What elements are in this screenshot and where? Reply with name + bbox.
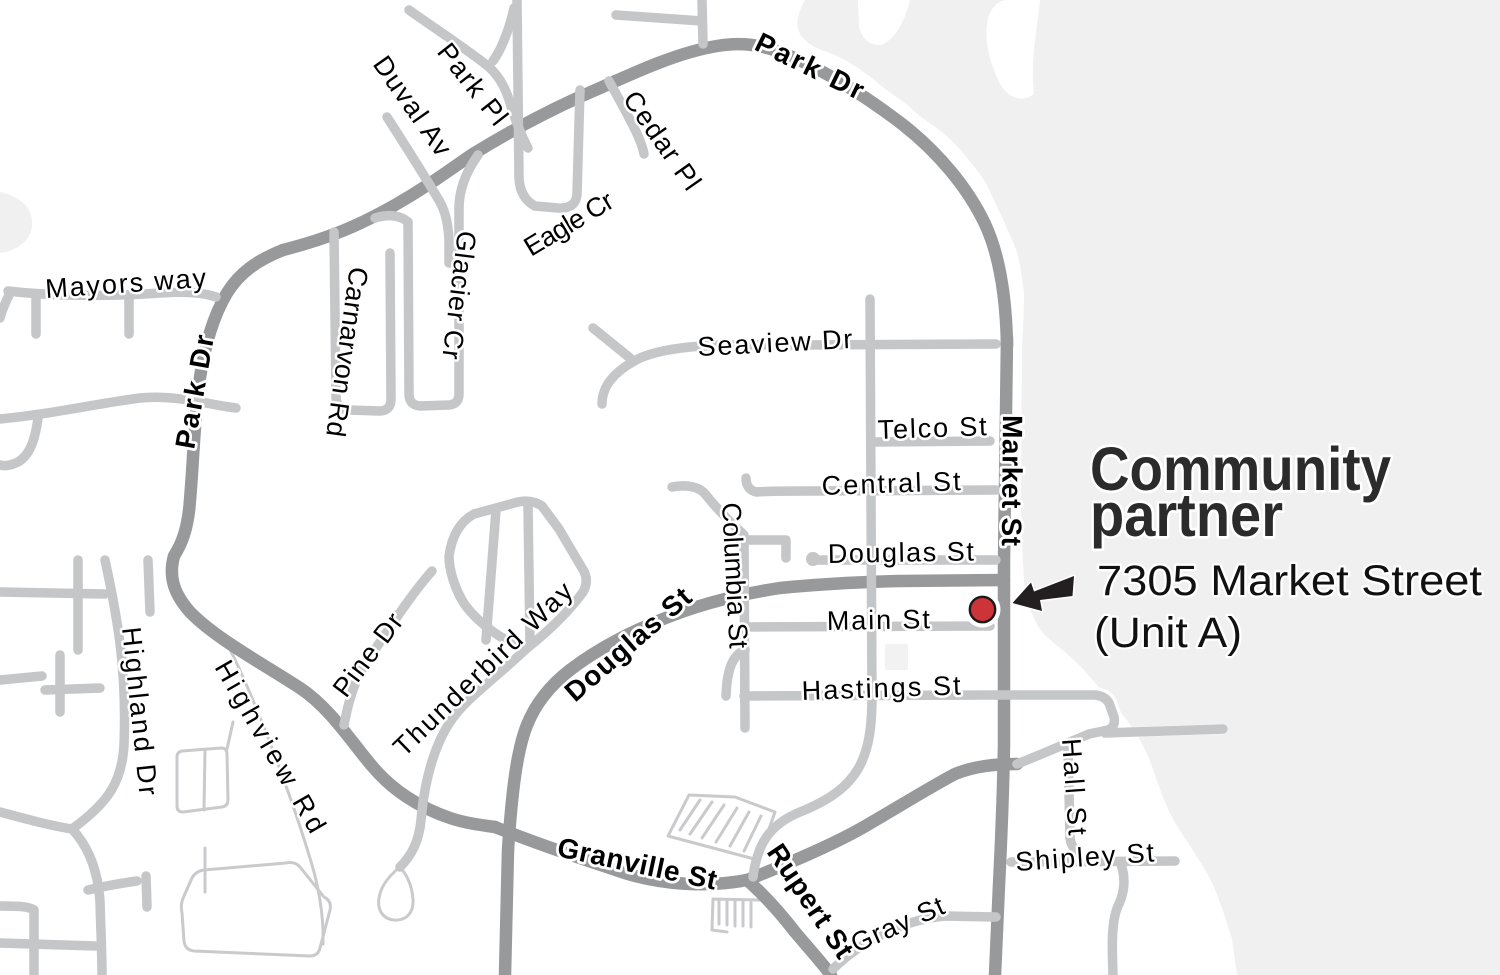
svg-text:7305 Market Street: 7305 Market Street: [1097, 558, 1482, 605]
svg-text:Douglas St: Douglas St: [828, 536, 976, 569]
svg-text:(Unit A): (Unit A): [1094, 610, 1242, 657]
svg-text:Central St: Central St: [821, 466, 962, 501]
svg-text:partner: partner: [1090, 481, 1283, 550]
svg-text:Hastings St: Hastings St: [801, 670, 962, 706]
svg-text:Market St: Market St: [996, 415, 1028, 547]
svg-text:Telco St: Telco St: [877, 411, 988, 445]
svg-text:Main St: Main St: [827, 604, 932, 636]
